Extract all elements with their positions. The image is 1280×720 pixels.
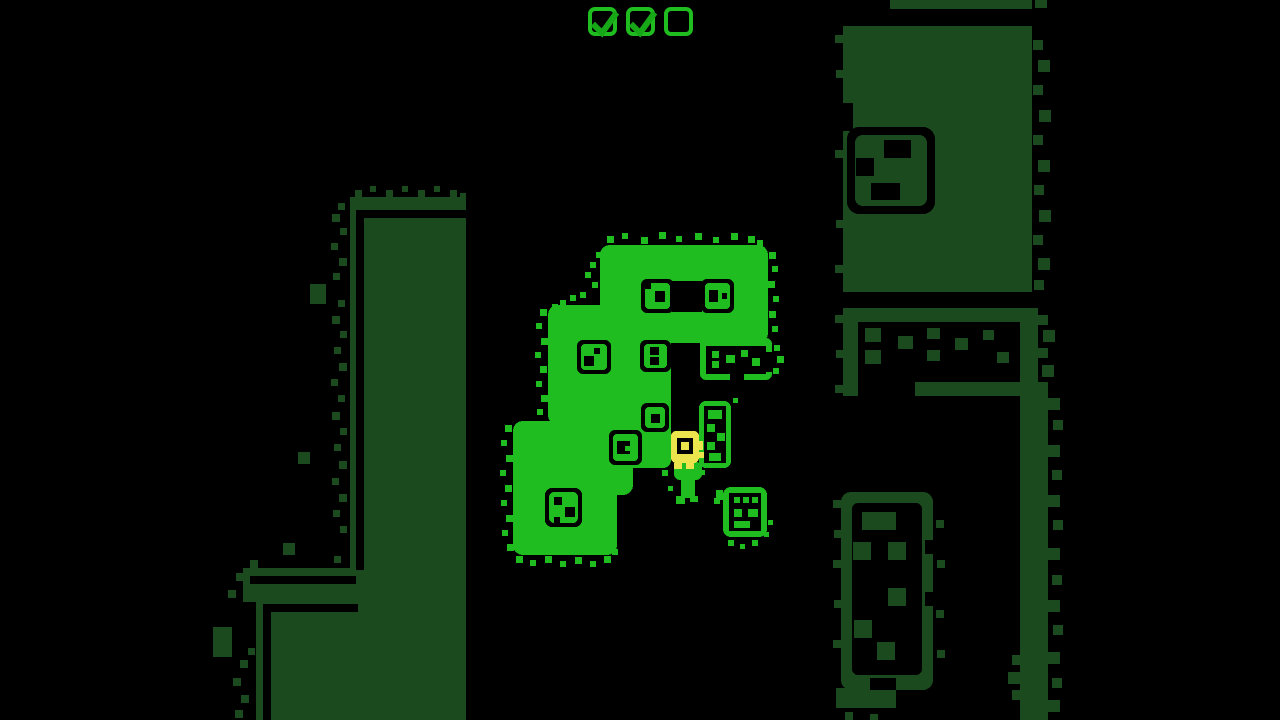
- dice-tile: [701, 279, 734, 313]
- dice-tile: [577, 340, 611, 374]
- dice-tile: [545, 488, 582, 527]
- checkmark-icon: [588, 8, 622, 42]
- objective-checkbox-3: [664, 7, 693, 36]
- island: [500, 232, 784, 567]
- pip-plate-tile: [700, 338, 772, 380]
- game-viewport[interactable]: [0, 0, 1280, 720]
- objective-checkbox-1: [588, 7, 617, 36]
- game-scene: [0, 0, 1280, 720]
- dice-tile: [609, 430, 642, 465]
- terrain-left-column: [213, 186, 466, 720]
- terrain-bottom-right-domino: [833, 492, 945, 720]
- dice-tile: [641, 279, 674, 313]
- terrain-top-right-block: [835, 0, 1051, 292]
- dice-tile-dim: [847, 127, 935, 214]
- dice-tile: [641, 403, 669, 432]
- checkmark-icon: [626, 8, 660, 42]
- terrain-right-column: [1008, 390, 1063, 720]
- exit-tile: [714, 487, 767, 537]
- objective-checkbox-2: [626, 7, 655, 36]
- dice-tile: [640, 340, 671, 372]
- objective-checkbox-row: [0, 7, 1280, 36]
